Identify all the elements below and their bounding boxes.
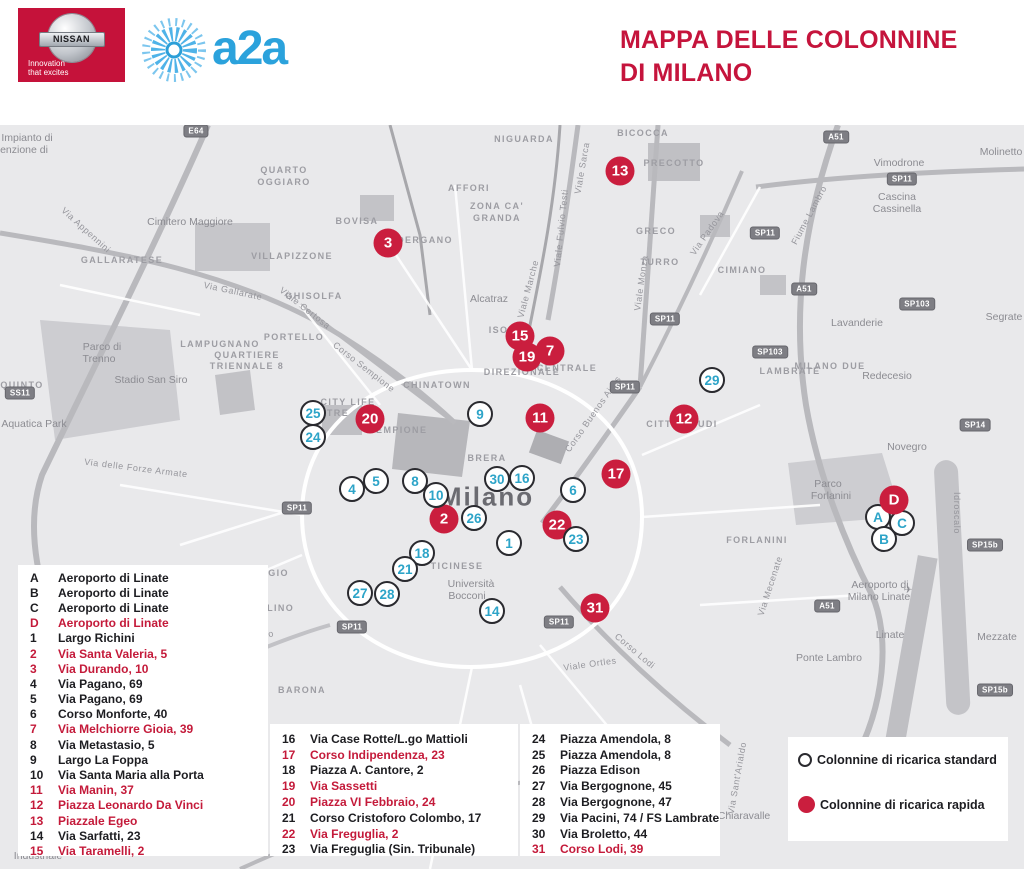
legend-key-standard-label: Colonnine di ricarica standard [817,753,997,767]
legend-item-1: 1Largo Richini [30,631,268,646]
legend-item-label: Piazza Amendola, 8 [560,732,671,746]
legend-item-label: Corso Monforte, 40 [58,707,167,721]
map-marker-14[interactable]: 14 [479,598,505,624]
legend-item-A: AAeroporto di Linate [30,570,268,585]
legend-item-key: 17 [282,748,310,762]
map-marker-10[interactable]: 10 [423,482,449,508]
map-marker-2[interactable]: 2 [430,505,459,534]
page-title-line1: MAPPA DELLE COLONNINE [620,24,1010,57]
legend-item-29: 29Via Pacini, 74 / FS Lambrate [532,810,720,826]
legend-item-key: 19 [282,779,310,793]
nissan-tagline-line2: that excites [28,68,68,77]
legend-key: Colonnine di ricarica standard Colonnine… [788,737,1008,841]
nissan-tagline-line1: Innovation [28,59,68,68]
legend-item-label: Corso Cristoforo Colombo, 17 [310,811,481,825]
legend-item-label: Aeroporto di Linate [58,616,169,630]
legend-item-label: Aeroporto di Linate [58,601,169,615]
legend-item-28: 28Via Bergognone, 47 [532,794,720,810]
legend-item-label: Via Broletto, 44 [560,827,647,841]
legend-item-10: 10Via Santa Maria alla Porta [30,767,268,782]
legend-item-key: 30 [532,827,560,841]
legend-item-key: 10 [30,768,58,782]
a2a-wordmark: a2a [212,21,286,76]
legend-item-label: Via Santa Valeria, 5 [58,647,167,661]
legend-item-label: Piazza Amendola, 8 [560,748,671,762]
legend-item-key: 12 [30,798,58,812]
a2a-starburst-icon [138,8,210,88]
legend-item-15: 15Via Taramelli, 2 [30,843,268,858]
legend-item-key: 28 [532,795,560,809]
legend-item-label: Via Santa Maria alla Porta [58,768,204,782]
legend-item-16: 16Via Case Rotte/L.go Mattioli [282,731,518,747]
legend-item-key: 31 [532,842,560,856]
map-marker-6[interactable]: 6 [560,477,586,503]
legend-item-7: 7Via Melchiorre Gioia, 39 [30,722,268,737]
legend-item-label: Via Taramelli, 2 [58,844,144,858]
map-marker-31[interactable]: 31 [581,594,610,623]
legend-item-label: Via Sassetti [310,779,377,793]
legend-item-key: B [30,586,58,600]
legend-item-key: 9 [30,753,58,767]
legend-item-12: 12Piazza Leonardo Da Vinci [30,798,268,813]
map-marker-28[interactable]: 28 [374,581,400,607]
header: NISSAN Innovation that excites a2a MAPPA… [0,0,1024,125]
legend-item-label: Largo La Foppa [58,753,148,767]
legend-item-key: 24 [532,732,560,746]
legend-item-23: 23Via Freguglia (Sin. Tribunale) [282,842,518,858]
legend-item-14: 14Via Sarfatti, 23 [30,828,268,843]
legend-item-8: 8Via Metastasio, 5 [30,737,268,752]
legend-item-key: 27 [532,779,560,793]
legend-item-label: Piazza Edison [560,763,640,777]
map-marker-1[interactable]: 1 [496,530,522,556]
map-marker-27[interactable]: 27 [347,580,373,606]
legend-item-key: 23 [282,842,310,856]
legend-item-key: 25 [532,748,560,762]
legend-item-9: 9Largo La Foppa [30,752,268,767]
map-marker-4[interactable]: 4 [339,476,365,502]
legend-item-key: 13 [30,814,58,828]
map-marker-20[interactable]: 20 [356,405,385,434]
map-marker-23[interactable]: 23 [563,526,589,552]
legend-item-key: 22 [282,827,310,841]
legend-item-27: 27Via Bergognone, 45 [532,778,720,794]
legend-item-B: BAeroporto di Linate [30,585,268,600]
legend-key-rapid-label: Colonnine di ricarica rapida [820,798,985,812]
legend-item-19: 19Via Sassetti [282,778,518,794]
legend-item-key: 4 [30,677,58,691]
map-marker-21[interactable]: 21 [392,556,418,582]
map-marker-25[interactable]: 25 [300,400,326,426]
legend-list-a-to-15: AAeroporto di LinateBAeroporto di Linate… [18,565,268,856]
map-marker-5[interactable]: 5 [363,468,389,494]
legend-item-label: Via Freguglia (Sin. Tribunale) [310,842,475,856]
legend-item-label: Via Sarfatti, 23 [58,829,141,843]
legend-item-22: 22Via Freguglia, 2 [282,826,518,842]
map-marker-17[interactable]: 17 [602,460,631,489]
nissan-wordmark: NISSAN [39,32,105,47]
map-marker-3[interactable]: 3 [374,229,403,258]
legend-item-5: 5Via Pagano, 69 [30,692,268,707]
legend-item-key: 7 [30,722,58,736]
map-marker-26[interactable]: 26 [461,505,487,531]
legend-item-key: D [30,616,58,630]
rapid-station-icon [798,796,815,813]
legend-item-key: A [30,571,58,585]
legend-item-C: CAeroporto di Linate [30,600,268,615]
map-marker-24[interactable]: 24 [300,424,326,450]
map-marker-11[interactable]: 11 [526,404,555,433]
map-marker-D[interactable]: D [880,486,909,515]
a2a-logo: a2a [138,8,286,88]
map-marker-16[interactable]: 16 [509,465,535,491]
legend-item-31: 31Corso Lodi, 39 [532,842,720,858]
legend-item-20: 20Piazza VI Febbraio, 24 [282,794,518,810]
legend-item-key: 14 [30,829,58,843]
map-marker-12[interactable]: 12 [670,405,699,434]
legend-item-label: Piazzale Egeo [58,814,137,828]
legend-item-key: C [30,601,58,615]
legend-item-label: Aeroporto di Linate [58,586,169,600]
legend-item-3: 3Via Durando, 10 [30,661,268,676]
map-marker-19[interactable]: 19 [513,343,542,372]
legend-item-label: Via Case Rotte/L.go Mattioli [310,732,468,746]
map-marker-13[interactable]: 13 [606,157,635,186]
legend-item-key: 16 [282,732,310,746]
legend-item-label: Via Melchiorre Gioia, 39 [58,722,193,736]
map-marker-9[interactable]: 9 [467,401,493,427]
standard-station-icon [798,753,812,767]
legend-item-label: Via Pagano, 69 [58,692,143,706]
legend-item-25: 25Piazza Amendola, 8 [532,747,720,763]
legend-item-key: 5 [30,692,58,706]
legend-item-key: 21 [282,811,310,825]
legend-item-label: Via Bergognone, 47 [560,795,672,809]
legend-item-26: 26Piazza Edison [532,763,720,779]
legend-item-21: 21Corso Cristoforo Colombo, 17 [282,810,518,826]
legend-item-key: 26 [532,763,560,777]
nissan-logo: NISSAN Innovation that excites [18,8,125,82]
legend-item-label: Via Freguglia, 2 [310,827,398,841]
legend-item-key: 29 [532,811,560,825]
legend-item-key: 1 [30,631,58,645]
legend-item-17: 17Corso Indipendenza, 23 [282,747,518,763]
legend-item-2: 2Via Santa Valeria, 5 [30,646,268,661]
page: QUARTOOGGIAROVILLAPIZZONEGALLARATESELAMP… [0,0,1024,869]
page-title-line2: DI MILANO [620,57,1010,90]
legend-item-key: 20 [282,795,310,809]
legend-item-11: 11Via Manin, 37 [30,783,268,798]
legend-item-label: Piazza Leonardo Da Vinci [58,798,203,812]
legend-item-key: 11 [30,783,58,797]
legend-item-key: 3 [30,662,58,676]
legend-item-label: Via Bergognone, 45 [560,779,672,793]
legend-item-label: Via Metastasio, 5 [58,738,155,752]
legend-item-label: Via Manin, 37 [58,783,134,797]
legend-list-24-to-31: 24Piazza Amendola, 825Piazza Amendola, 8… [520,724,720,856]
legend-item-key: 2 [30,647,58,661]
legend-item-key: 8 [30,738,58,752]
map-marker-30[interactable]: 30 [484,466,510,492]
legend-item-key: 18 [282,763,310,777]
page-title: MAPPA DELLE COLONNINE DI MILANO [620,24,1010,90]
legend-item-key: 15 [30,844,58,858]
legend-item-label: Via Durando, 10 [58,662,148,676]
legend-item-label: Largo Richini [58,631,135,645]
legend-item-label: Piazza VI Febbraio, 24 [310,795,435,809]
legend-item-label: Corso Indipendenza, 23 [310,748,445,762]
legend-item-4: 4Via Pagano, 69 [30,676,268,691]
legend-key-standard-row: Colonnine di ricarica standard [798,753,1008,767]
legend-item-label: Aeroporto di Linate [58,571,169,585]
nissan-tagline: Innovation that excites [28,59,68,77]
legend-item-label: Corso Lodi, 39 [560,842,643,856]
legend-list-16-to-23: 16Via Case Rotte/L.go Mattioli17Corso In… [270,724,518,856]
legend-item-label: Via Pacini, 74 / FS Lambrate [560,811,719,825]
legend-item-key: 6 [30,707,58,721]
legend-item-18: 18Piazza A. Cantore, 2 [282,763,518,779]
legend-item-D: DAeroporto di Linate [30,616,268,631]
legend-item-6: 6Corso Monforte, 40 [30,707,268,722]
legend-key-rapid-row: Colonnine di ricarica rapida [798,796,1008,813]
legend-item-label: Piazza A. Cantore, 2 [310,763,424,777]
legend-item-13: 13Piazzale Egeo [30,813,268,828]
legend-item-label: Via Pagano, 69 [58,677,143,691]
legend-item-24: 24Piazza Amendola, 8 [532,731,720,747]
map-marker-29[interactable]: 29 [699,367,725,393]
legend-item-30: 30Via Broletto, 44 [532,826,720,842]
